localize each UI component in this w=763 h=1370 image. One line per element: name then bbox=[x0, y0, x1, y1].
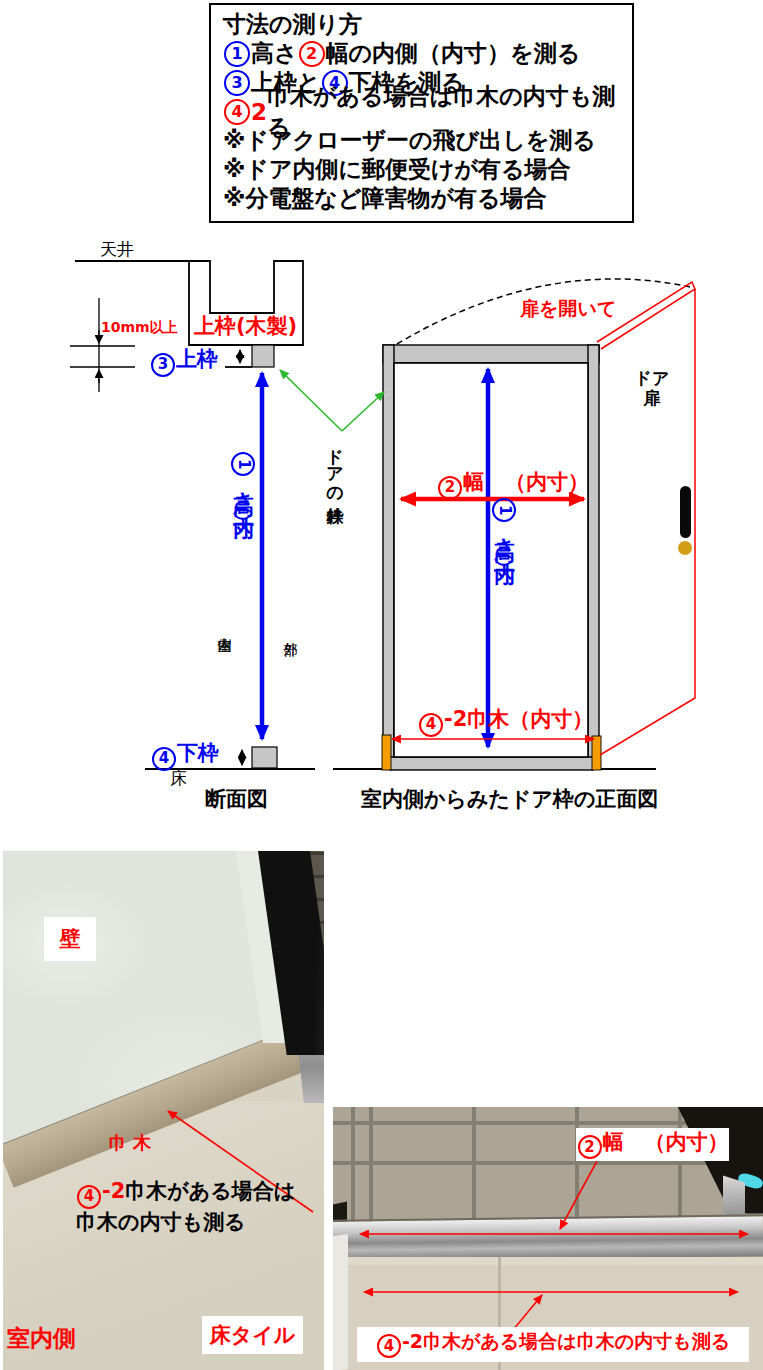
label-text: 幅 （内寸） bbox=[463, 470, 589, 494]
door-leaf-line1: ドア bbox=[630, 369, 674, 389]
door-leaf-label: ドア 扉 bbox=[630, 369, 674, 408]
lower-frame-label: 4下枠 bbox=[151, 741, 219, 771]
door-steel-frame-label: ドアの鉄枠 bbox=[325, 436, 345, 494]
upper-frame-wood-label: 上枠(木製) bbox=[194, 314, 297, 338]
section-lower-frame bbox=[252, 747, 277, 768]
door-handle bbox=[680, 486, 691, 538]
indoor-side-photo-label: 室内側 bbox=[7, 1325, 76, 1351]
label-text: 巾木の内寸も測る bbox=[76, 1210, 245, 1234]
section-wall-lines bbox=[75, 261, 656, 769]
floor-tile-label-box: 床タイル bbox=[202, 1316, 303, 1354]
label-text: 高さ bbox=[251, 38, 298, 69]
open-door-label: 扉を開いて bbox=[520, 298, 616, 320]
instruction-line: ※ドア内側に郵便受けが有る場合 bbox=[223, 155, 632, 184]
steel-frame-pointer-arrows bbox=[280, 370, 384, 431]
wall-label: 壁 bbox=[60, 927, 81, 951]
floor-tile-label: 床タイル bbox=[210, 1323, 295, 1347]
min-gap-label: 10mm以上 bbox=[101, 319, 178, 335]
circled-number: 1 bbox=[224, 41, 250, 67]
label-text: ※ドア内側に郵便受けが有る場合 bbox=[223, 154, 571, 185]
circled-number: 4 bbox=[152, 747, 176, 771]
label-text: 幅 （内寸） bbox=[603, 1130, 729, 1154]
door-leaf-line2: 扉 bbox=[630, 389, 674, 409]
section-height-label: 1高さ（内寸） bbox=[231, 451, 256, 501]
section-upper-steel-frame bbox=[252, 345, 274, 367]
front-caption: 室内側からみたドア枠の正面図 bbox=[361, 787, 658, 811]
baseboard-right-orange bbox=[592, 736, 601, 770]
label-text: 巾木がある場合は bbox=[125, 1179, 295, 1203]
circled-number: 4 bbox=[77, 1185, 101, 1209]
front-width-label: 2幅 （内寸） bbox=[437, 470, 589, 500]
circled-number: 4 bbox=[224, 99, 250, 125]
circled-number: 4 bbox=[377, 1334, 401, 1358]
circled-number: 1 bbox=[231, 452, 255, 476]
circled-number: 3 bbox=[224, 70, 250, 96]
circled-number: 3 bbox=[151, 353, 175, 377]
instruction-line: ※ドアクローザーの飛び出しを測る bbox=[223, 126, 632, 155]
circled-number: 2 bbox=[578, 1135, 602, 1159]
floor-label: 床 bbox=[170, 769, 187, 789]
label-text: 寸法の測り方 bbox=[223, 9, 362, 40]
photo-note-label: 4-2巾木がある場合は巾木の内寸も測る bbox=[376, 1331, 730, 1359]
instruction-line: ※分電盤など障害物が有る場合 bbox=[223, 184, 632, 213]
measurement-instruction-sheet: 寸法の測り方 1高さ2幅の内側（内寸）を測る 3上枠と4下枠を測る 42巾木があ… bbox=[0, 0, 763, 1370]
baseboard-note-line1: 4-2巾木がある場合は bbox=[76, 1179, 295, 1209]
metal-threshold bbox=[333, 1214, 763, 1261]
label-text: 高さ（内寸） bbox=[232, 477, 256, 501]
circled-number: 4 bbox=[419, 713, 443, 737]
baseboard-note-line2: 巾木の内寸も測る bbox=[76, 1210, 245, 1234]
baseboard-label: 巾 木 bbox=[109, 1133, 151, 1154]
circled-number: 2 bbox=[438, 476, 462, 500]
label-text: -2 bbox=[102, 1179, 125, 1203]
label-text: ※ドアクローザーの飛び出しを測る bbox=[223, 125, 596, 156]
label-text: 上枠 bbox=[176, 347, 218, 371]
wall-label-box: 壁 bbox=[44, 917, 96, 961]
front-height-label: 1高さ（内寸） bbox=[492, 497, 517, 547]
instruction-line: 42巾木がある場合は巾木の内寸も測る bbox=[223, 97, 632, 126]
baseboard-left-orange bbox=[382, 735, 391, 770]
photo-width-label-box: 2幅 （内寸） bbox=[576, 1128, 729, 1161]
upper-frame-label: 3上枠 bbox=[150, 347, 218, 377]
circled-number: 1 bbox=[492, 498, 516, 522]
instruction-line: 寸法の測り方 bbox=[223, 10, 632, 39]
instruction-box: 寸法の測り方 1高さ2幅の内側（内寸）を測る 3上枠と4下枠を測る 42巾木があ… bbox=[209, 3, 634, 223]
min-gap-dimension bbox=[70, 298, 135, 392]
photo-note-box: 4-2巾木がある場合は巾木の内寸も測る bbox=[357, 1327, 749, 1362]
label-text: ※分電盤など障害物が有る場合 bbox=[223, 183, 547, 214]
label-text: -2巾木がある場合は巾木の内寸も測る bbox=[402, 1330, 730, 1352]
label-text: 幅の内側（内寸）を測る bbox=[326, 38, 581, 69]
section-caption: 断面図 bbox=[205, 787, 268, 811]
photo-width-label: 2幅 （内寸） bbox=[577, 1130, 729, 1160]
wall-corner-white bbox=[333, 1234, 348, 1370]
ceiling-label: 天井 bbox=[100, 240, 134, 260]
door-knob bbox=[678, 541, 692, 555]
label-text: -2巾木（内寸） bbox=[444, 707, 593, 731]
instruction-line: 1高さ2幅の内側（内寸）を測る bbox=[223, 39, 632, 68]
label-text: 2 bbox=[251, 99, 267, 125]
front-baseboard-width-label: 4-2巾木（内寸） bbox=[418, 707, 593, 737]
label-text: 下枠 bbox=[177, 741, 219, 765]
circled-number: 2 bbox=[299, 41, 325, 67]
label-text: 高さ（内寸） bbox=[493, 523, 517, 547]
